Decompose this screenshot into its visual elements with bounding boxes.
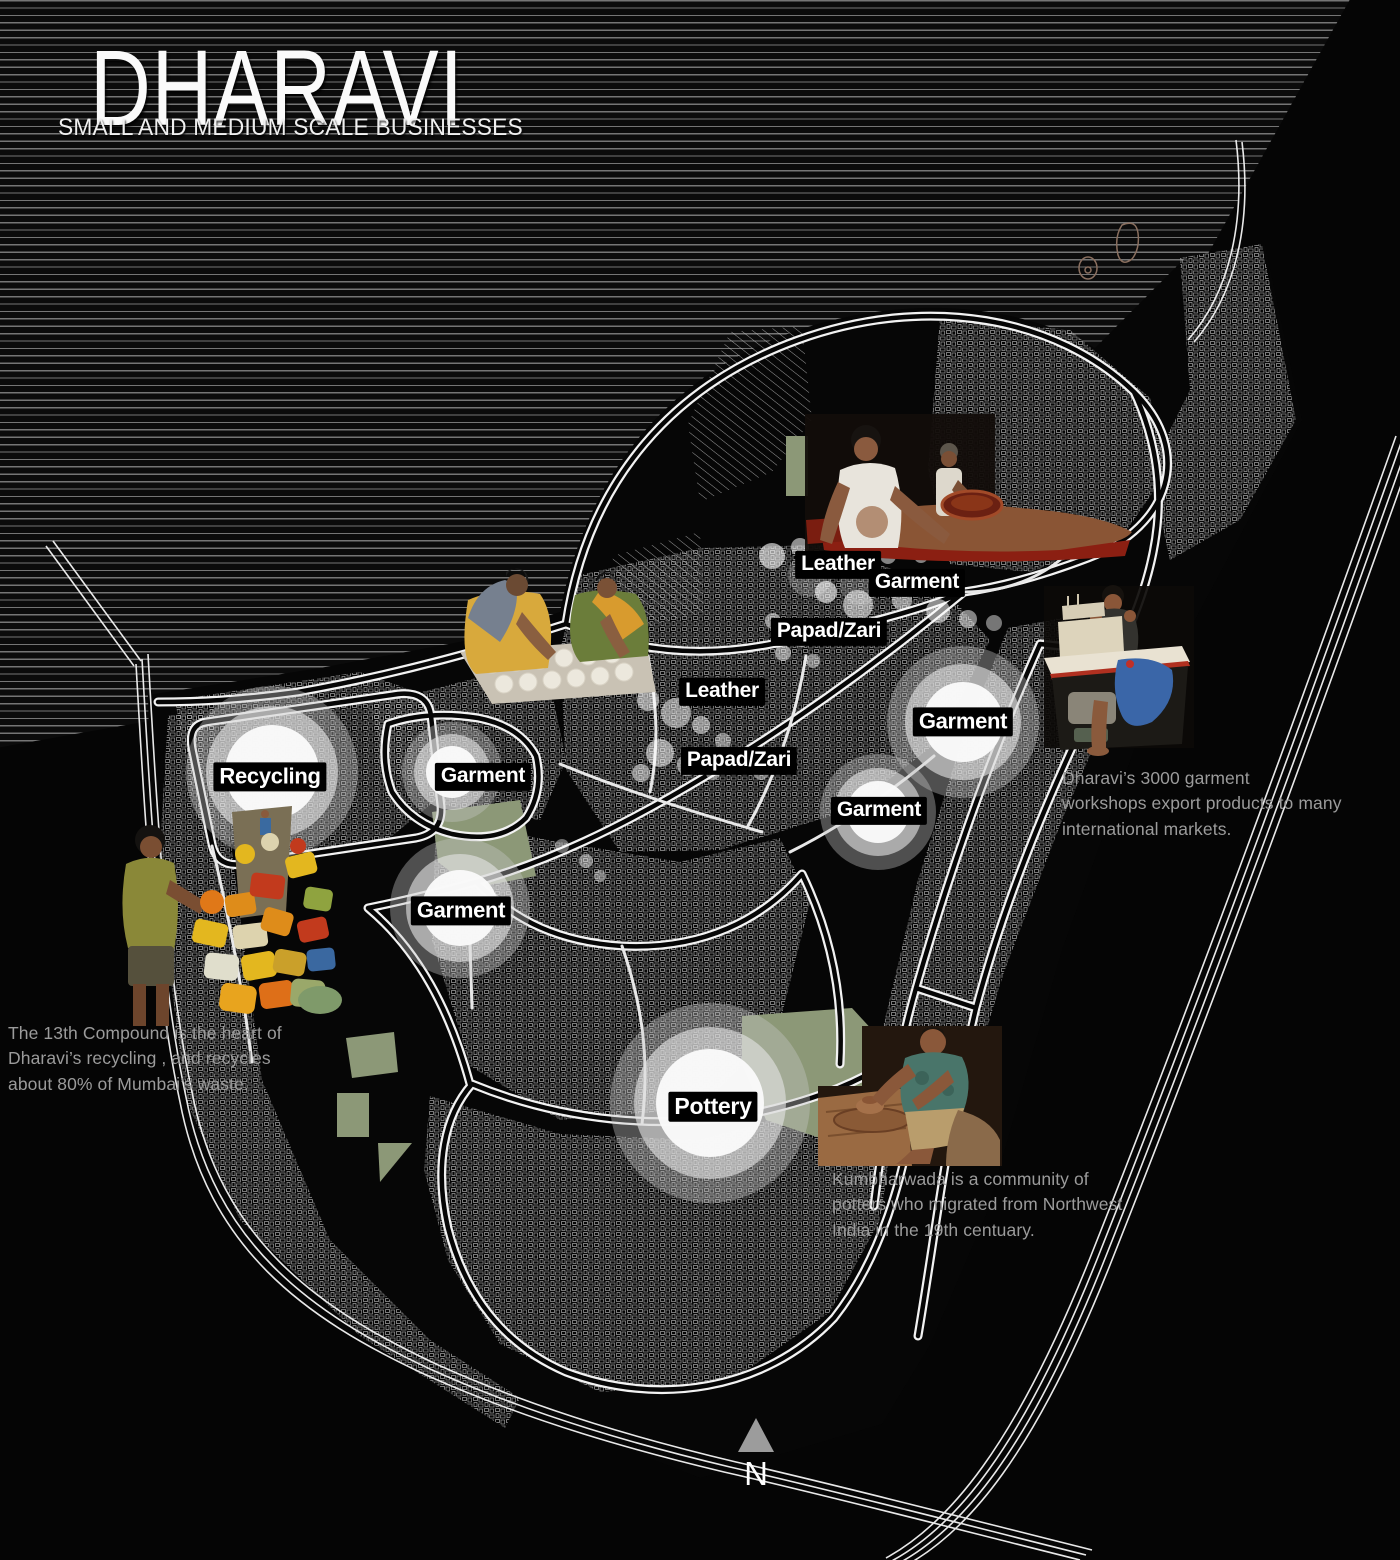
page-subtitle: SMALL AND MEDIUM SCALE BUSINESSES — [58, 114, 523, 142]
map-label-garment-east-upper: Garment — [913, 707, 1013, 736]
map-label-garment-east-lower: Garment — [831, 797, 927, 825]
photo-garment-worker — [1044, 585, 1194, 756]
map-label-papad-zari-central: Papad/Zari — [681, 747, 797, 775]
map-label-pottery: Pottery — [668, 1092, 757, 1122]
map-label-leather-central: Leather — [679, 678, 765, 706]
map-label-garment-west-upper: Garment — [435, 763, 531, 791]
map-label-garment-north: Garment — [869, 569, 965, 597]
north-label: N — [744, 1455, 768, 1493]
north-arrow-icon — [738, 1418, 774, 1452]
annotation-garment: Dharavi’s 3000 garment workshops export … — [1062, 766, 1392, 842]
dharavi-poster: DHARAVI SMALL AND MEDIUM SCALE BUSINESSE… — [0, 0, 1400, 1560]
map-label-recycling: Recycling — [213, 762, 326, 791]
map-label-garment-west-lower: Garment — [411, 896, 511, 925]
annotation-pottery: Kumbharwada is a community of potters wh… — [832, 1167, 1162, 1243]
map-label-papad-zari-north: Papad/Zari — [771, 618, 887, 646]
pond-outlines — [1079, 223, 1138, 279]
annotation-recycling: The 13th Compound is the heart of Dharav… — [8, 1021, 338, 1097]
